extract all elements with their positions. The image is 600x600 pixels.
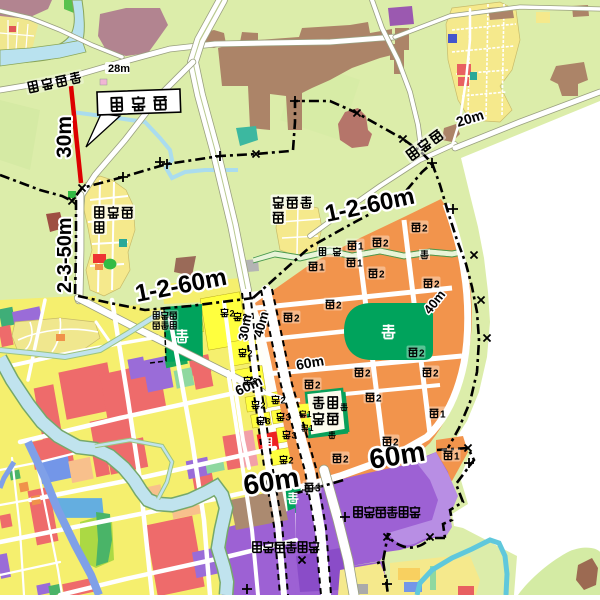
svg-text:2: 2 [383,239,389,250]
svg-text:30m: 30m [53,116,76,158]
svg-text:2: 2 [376,394,382,405]
svg-text:2-3-50m: 2-3-50m [54,217,76,293]
svg-text:2: 2 [248,349,253,359]
svg-text:1: 1 [309,424,314,433]
svg-text:1: 1 [440,410,446,421]
svg-text:2: 2 [253,377,258,387]
svg-text:1: 1 [357,259,363,270]
svg-text:3: 3 [315,484,321,495]
svg-text:2: 2 [294,314,300,325]
svg-text:1: 1 [454,452,460,463]
svg-text:3: 3 [266,417,271,427]
svg-text:2: 2 [365,369,371,380]
svg-text:2: 2 [243,313,248,323]
svg-text:2: 2 [289,456,294,466]
svg-text:1: 1 [307,410,312,419]
svg-text:2: 2 [230,309,235,319]
svg-text:2: 2 [336,301,342,312]
svg-text:2: 2 [343,455,349,466]
svg-text:2: 2 [422,224,428,235]
svg-text:2: 2 [433,369,439,380]
svg-text:2: 2 [379,270,385,281]
svg-text:1: 1 [319,263,325,274]
svg-text:1: 1 [358,242,364,253]
svg-text:2: 2 [261,401,266,411]
svg-text:2: 2 [419,349,425,360]
svg-text:28m: 28m [108,63,130,75]
svg-text:2: 2 [393,438,399,449]
svg-text:2: 2 [434,280,440,291]
svg-text:3: 3 [292,431,297,441]
svg-text:2: 2 [281,396,286,406]
svg-text:2: 2 [315,381,321,392]
svg-text:3: 3 [286,413,291,423]
